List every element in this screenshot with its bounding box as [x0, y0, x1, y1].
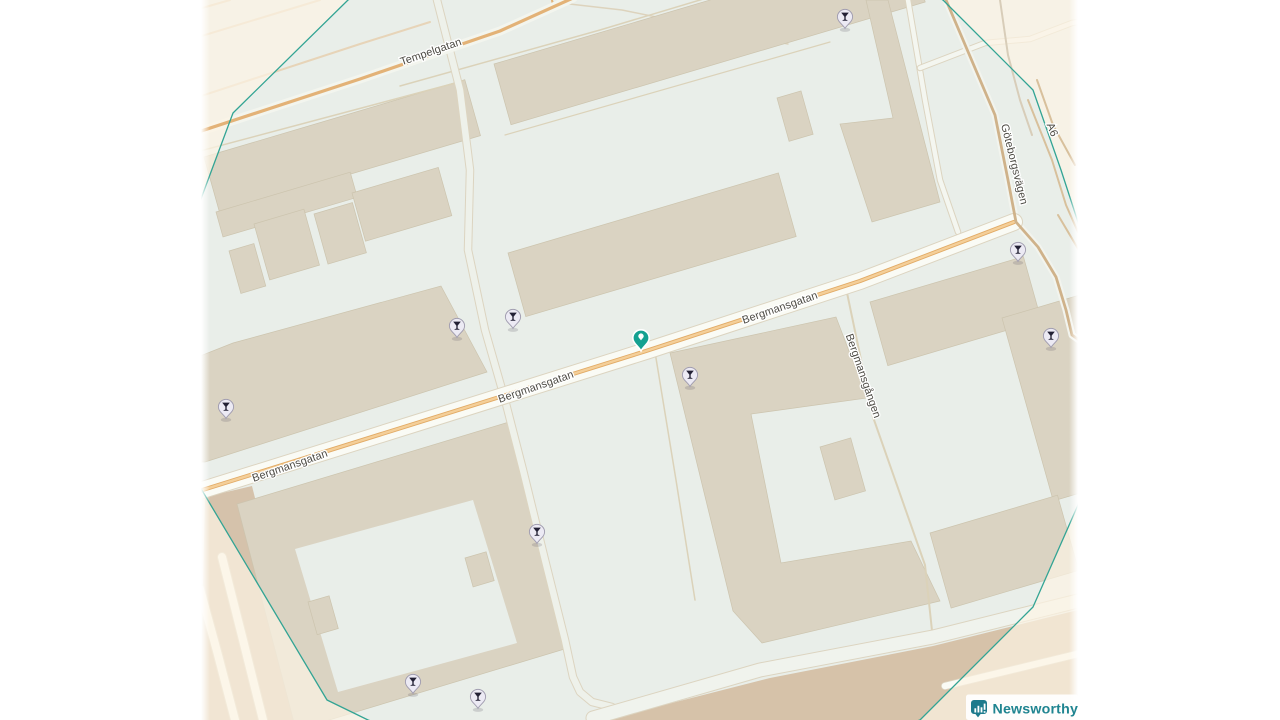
svg-text:Newsworthy: Newsworthy	[993, 702, 1079, 718]
